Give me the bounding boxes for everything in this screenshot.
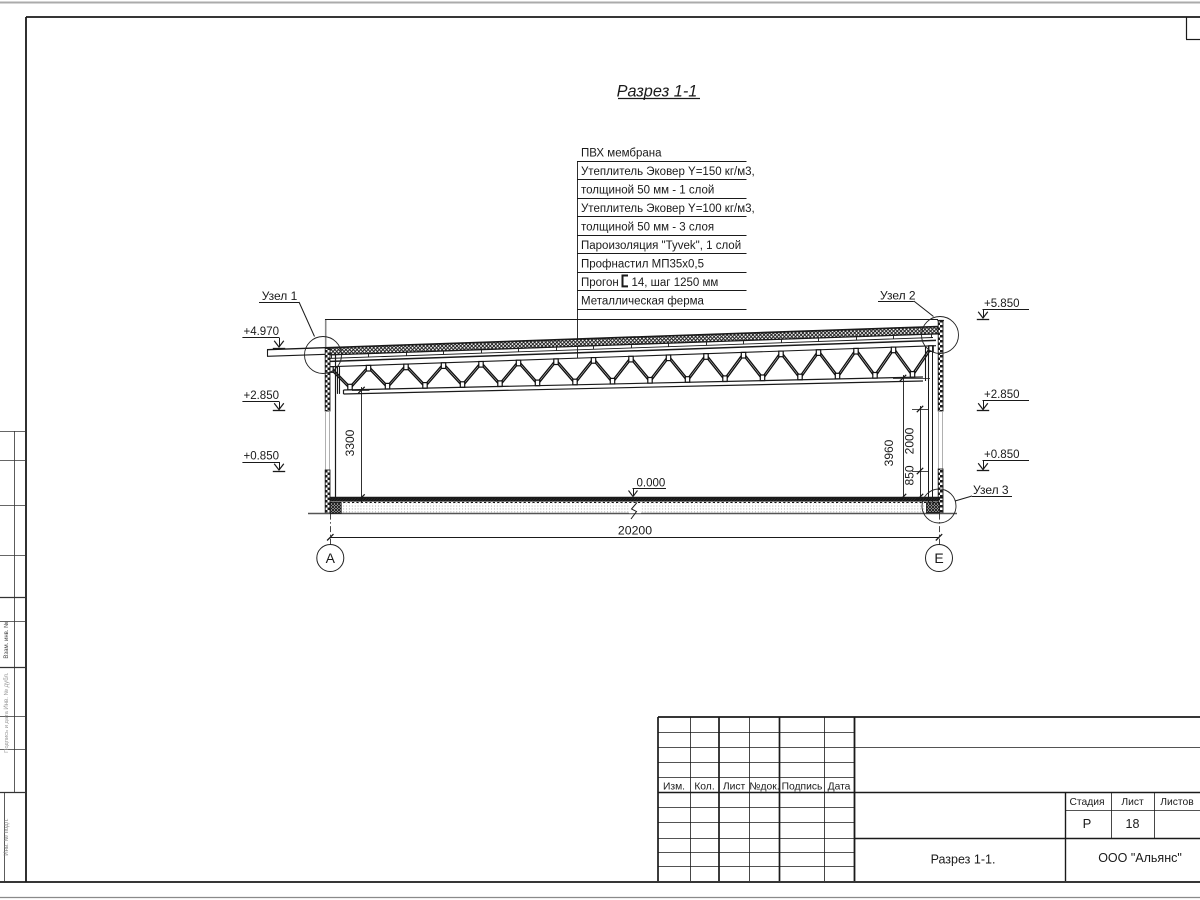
svg-text:+2.850: +2.850 (244, 390, 280, 402)
svg-text:Взам. инв. №: Взам. инв. № (3, 621, 10, 658)
svg-text:ООО "Альянс": ООО "Альянс" (1098, 851, 1182, 865)
svg-text:Подпись и дата: Подпись и дата (4, 710, 10, 752)
svg-text:0.000: 0.000 (637, 478, 666, 490)
svg-text:+0.850: +0.850 (984, 449, 1020, 461)
svg-text:№док.: №док. (749, 782, 779, 793)
svg-text:толщиной 50 мм - 1 слой: толщиной 50 мм - 1 слой (581, 185, 714, 197)
svg-text:Разрез 1-1: Разрез 1-1 (617, 83, 698, 101)
svg-text:850: 850 (903, 465, 917, 485)
svg-text:ПВХ мембрана: ПВХ мембрана (581, 148, 662, 160)
svg-text:Профнастил МП35х0,5: Профнастил МП35х0,5 (581, 259, 704, 271)
svg-text:Узел 2: Узел 2 (880, 289, 916, 303)
svg-text:Утеплитель Эковер Y=150 кг/м3,: Утеплитель Эковер Y=150 кг/м3, (581, 166, 755, 178)
svg-text:3300: 3300 (343, 429, 357, 456)
svg-text:Р: Р (1083, 816, 1092, 831)
svg-text:Кол.: Кол. (694, 782, 714, 793)
svg-text:20200: 20200 (618, 524, 652, 538)
svg-text:Инв. № подл.: Инв. № подл. (3, 818, 10, 856)
svg-text:Пароизоляция "Tyvek", 1 слой: Пароизоляция "Tyvek", 1 слой (581, 240, 741, 252)
svg-text:+2.850: +2.850 (984, 389, 1020, 401)
svg-text:А: А (326, 550, 336, 566)
svg-text:Разрез 1-1.: Разрез 1-1. (931, 853, 996, 867)
svg-text:Подпись: Подпись (782, 782, 823, 793)
svg-text:18: 18 (1126, 817, 1140, 831)
svg-text:Инв. № дубл.: Инв. № дубл. (3, 672, 10, 709)
svg-text:Утеплитель Эковер Y=100 кг/м3,: Утеплитель Эковер Y=100 кг/м3, (581, 203, 755, 215)
svg-text:+5.850: +5.850 (984, 298, 1020, 310)
svg-text:Лист: Лист (723, 782, 746, 793)
svg-text:14, шаг 1250 мм: 14, шаг 1250 мм (632, 277, 719, 289)
svg-text:Прогон: Прогон (581, 277, 619, 289)
svg-text:Листов: Листов (1160, 797, 1194, 808)
svg-text:Стадия: Стадия (1069, 797, 1104, 808)
svg-text:Лист: Лист (1121, 797, 1144, 808)
svg-text:2000: 2000 (903, 427, 917, 454)
svg-text:Изм.: Изм. (663, 782, 685, 793)
svg-text:Е: Е (934, 550, 943, 566)
svg-text:Узел 3: Узел 3 (973, 483, 1009, 497)
svg-text:+0.850: +0.850 (244, 451, 280, 463)
svg-text:толщиной 50 мм - 3 слоя: толщиной 50 мм - 3 слоя (581, 222, 714, 234)
svg-text:Металлическая ферма: Металлическая ферма (581, 296, 704, 308)
svg-text:Дата: Дата (828, 782, 851, 793)
svg-text:+4.970: +4.970 (244, 326, 280, 338)
svg-text:3960: 3960 (882, 439, 896, 466)
svg-text:Узел 1: Узел 1 (262, 289, 298, 303)
